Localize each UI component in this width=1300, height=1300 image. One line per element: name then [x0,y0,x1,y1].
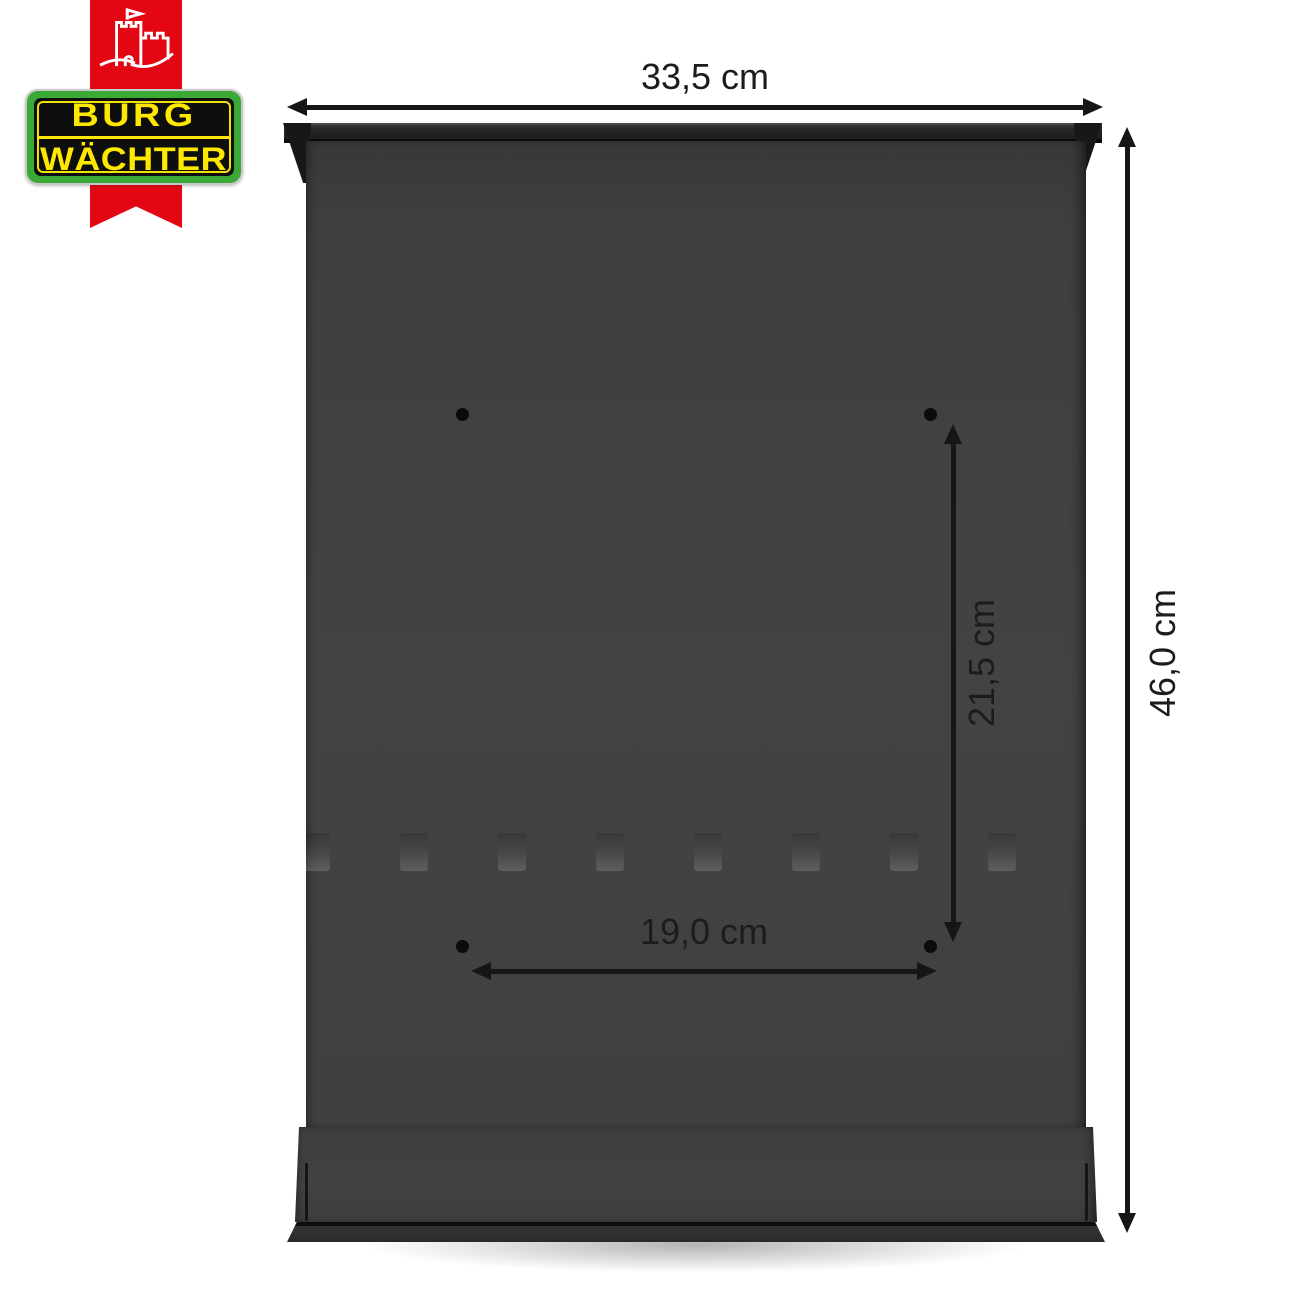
mounting-hole [924,408,937,421]
embossed-square [306,833,330,871]
mailbox-right-crease [1085,1163,1088,1221]
mailbox-lower-panel [295,1127,1097,1222]
brand-logo: BURG WÄCHTER [0,0,260,240]
badge-text: BURG WÄCHTER [37,97,231,177]
hole-spacing-vertical-line [951,443,956,923]
embossed-square [694,833,722,871]
width-dimension-line [306,105,1084,110]
hole-spacing-vertical-label: 21,5 cm [964,599,1000,727]
width-dimension-label: 33,5 cm [316,59,1094,95]
mailbox-left-crease [305,1163,308,1221]
product-dimension-diagram: BURG WÄCHTER 33,5 cm [0,0,1300,1300]
mailbox-base-edge [287,1222,1105,1242]
embossed-square [988,833,1016,871]
height-dimension-line [1125,146,1130,1214]
mailbox-top-plate [284,123,1102,143]
brand-word-burg: BURG [71,98,196,133]
mounting-hole [456,408,469,421]
embossed-square [890,833,918,871]
embossed-square [498,833,526,871]
brand-word-waechter: WÄCHTER [40,142,227,177]
embossed-square [792,833,820,871]
mounting-hole [924,940,937,953]
castle-icon [95,6,177,72]
embossed-square [400,833,428,871]
mounting-hole [456,940,469,953]
badge-divider [37,136,231,139]
brand-badge: BURG WÄCHTER [25,89,243,185]
embossed-square [596,833,624,871]
hole-spacing-horizontal-label: 19,0 cm [490,914,918,950]
height-dimension-label: 46,0 cm [1145,589,1181,717]
hole-spacing-horizontal-line [490,969,918,974]
